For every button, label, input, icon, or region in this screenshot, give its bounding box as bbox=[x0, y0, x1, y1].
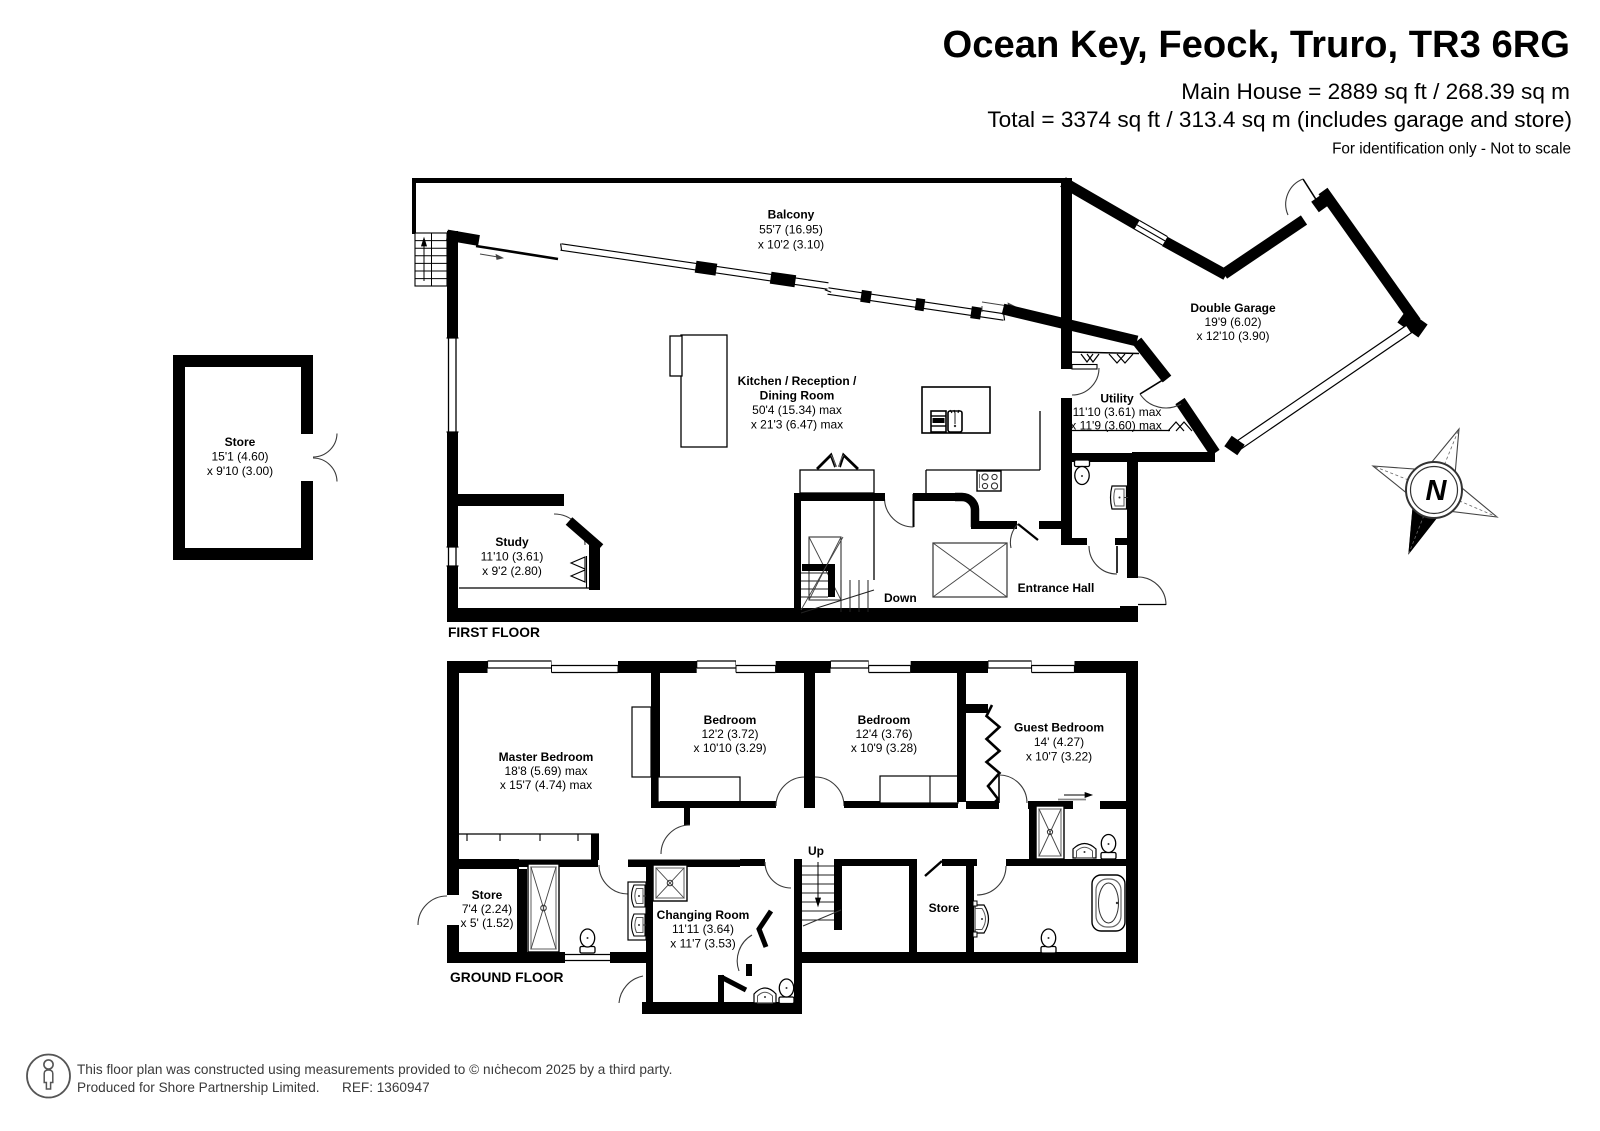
svg-text:GROUND FLOOR: GROUND FLOOR bbox=[450, 970, 563, 985]
svg-text:Double Garage: Double Garage bbox=[1190, 301, 1276, 315]
svg-text:Store: Store bbox=[472, 888, 503, 902]
svg-text:x 10'10 (3.29): x 10'10 (3.29) bbox=[693, 741, 766, 755]
svg-text:55'7 (16.95): 55'7 (16.95) bbox=[759, 223, 823, 237]
svg-text:15'1 (4.60): 15'1 (4.60) bbox=[212, 450, 269, 464]
svg-text:11'10 (3.61): 11'10 (3.61) bbox=[481, 550, 544, 564]
svg-text:Produced for Shore Partnership: Produced for Shore Partnership Limited. bbox=[77, 1080, 320, 1095]
svg-text:This floor plan was constructe: This floor plan was constructed using me… bbox=[77, 1062, 672, 1077]
svg-text:50'4 (15.34) max: 50'4 (15.34) max bbox=[752, 403, 842, 417]
svg-text:Balcony: Balcony bbox=[768, 208, 815, 222]
svg-text:14' (4.27): 14' (4.27) bbox=[1034, 735, 1084, 749]
svg-text:x 5' (1.52): x 5' (1.52) bbox=[461, 916, 514, 930]
svg-text:Up: Up bbox=[808, 844, 824, 858]
svg-text:x 11'9 (3.60) max: x 11'9 (3.60) max bbox=[1070, 419, 1161, 433]
svg-text:Main House = 2889 sq ft / 268.: Main House = 2889 sq ft / 268.39 sq m bbox=[1181, 79, 1570, 104]
svg-text:18'8 (5.69) max: 18'8 (5.69) max bbox=[505, 764, 588, 778]
svg-text:x 12'10 (3.90): x 12'10 (3.90) bbox=[1196, 329, 1269, 343]
svg-text:12'2 (3.72): 12'2 (3.72) bbox=[702, 727, 759, 741]
svg-text:11'11 (3.64): 11'11 (3.64) bbox=[672, 922, 734, 936]
svg-text:REF: 1360947: REF: 1360947 bbox=[342, 1080, 430, 1095]
svg-text:Store: Store bbox=[225, 435, 256, 449]
svg-text:Master Bedroom: Master Bedroom bbox=[499, 750, 594, 764]
svg-text:Bedroom: Bedroom bbox=[704, 713, 757, 727]
svg-text:x 21'3 (6.47) max: x 21'3 (6.47) max bbox=[751, 418, 843, 432]
svg-text:Dining Room: Dining Room bbox=[760, 389, 835, 403]
svg-text:Utility: Utility bbox=[1100, 392, 1134, 406]
svg-text:11'10 (3.61) max: 11'10 (3.61) max bbox=[1073, 405, 1162, 419]
svg-text:x 10'7 (3.22): x 10'7 (3.22) bbox=[1026, 750, 1092, 764]
svg-text:Ocean Key, Feock, Truro, TR3 6: Ocean Key, Feock, Truro, TR3 6RG bbox=[943, 23, 1570, 66]
svg-text:x 10'9 (3.28): x 10'9 (3.28) bbox=[851, 741, 917, 755]
svg-text:Total = 3374 sq ft / 313.4 sq: Total = 3374 sq ft / 313.4 sq m (include… bbox=[987, 107, 1572, 132]
svg-text:Store: Store bbox=[929, 901, 960, 915]
svg-text:For identification only - Not: For identification only - Not to scale bbox=[1332, 141, 1571, 158]
svg-text:FIRST FLOOR: FIRST FLOOR bbox=[448, 625, 540, 640]
svg-text:Changing Room: Changing Room bbox=[657, 908, 750, 922]
svg-text:12'4 (3.76): 12'4 (3.76) bbox=[856, 727, 913, 741]
svg-text:7'4 (2.24): 7'4 (2.24) bbox=[462, 902, 512, 916]
svg-text:x 10'2 (3.10): x 10'2 (3.10) bbox=[758, 238, 824, 252]
svg-text:Kitchen / Reception /: Kitchen / Reception / bbox=[738, 374, 857, 388]
svg-text:Entrance Hall: Entrance Hall bbox=[1018, 581, 1095, 595]
svg-text:Study: Study bbox=[495, 535, 529, 549]
svg-text:x 15'7 (4.74) max: x 15'7 (4.74) max bbox=[500, 778, 592, 792]
svg-text:x 9'2 (2.80): x 9'2 (2.80) bbox=[482, 564, 542, 578]
svg-text:x 9'10 (3.00): x 9'10 (3.00) bbox=[207, 464, 273, 478]
svg-text:N: N bbox=[1426, 475, 1448, 507]
svg-text:19'9 (6.02): 19'9 (6.02) bbox=[1205, 315, 1262, 329]
svg-text:Bedroom: Bedroom bbox=[858, 713, 911, 727]
svg-text:Down: Down bbox=[884, 591, 917, 605]
svg-text:Guest Bedroom: Guest Bedroom bbox=[1014, 721, 1104, 735]
svg-text:x 11'7 (3.53): x 11'7 (3.53) bbox=[670, 937, 735, 951]
